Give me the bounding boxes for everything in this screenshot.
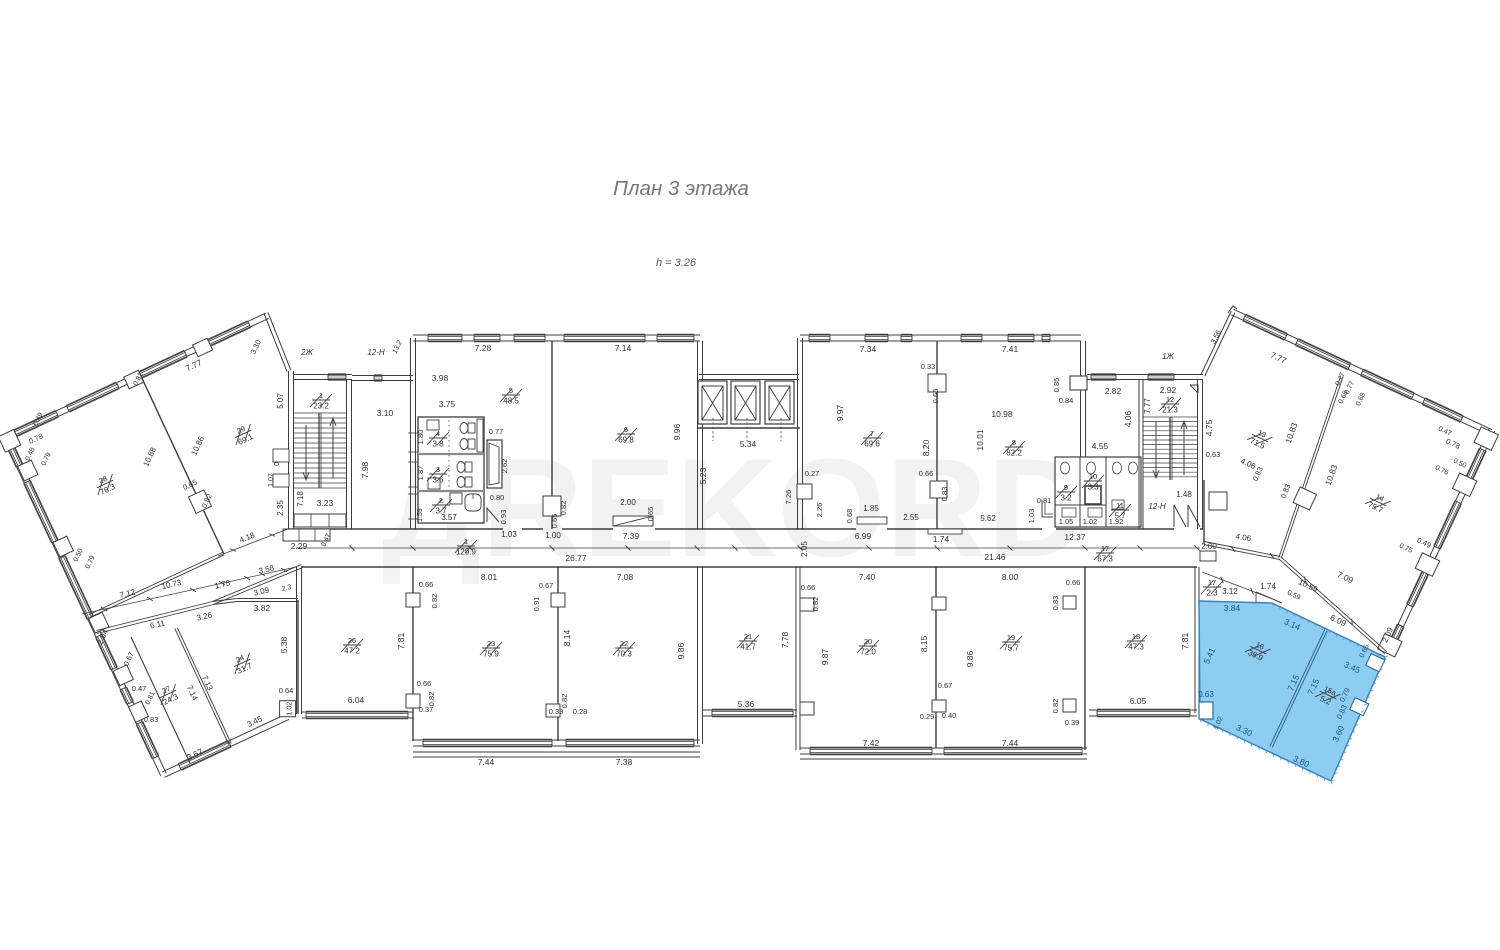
svg-text:6.99: 6.99 xyxy=(855,531,872,541)
svg-text:12-Н: 12-Н xyxy=(367,348,385,357)
svg-text:0.91: 0.91 xyxy=(532,597,541,612)
svg-text:0.66: 0.66 xyxy=(801,583,816,592)
svg-text:1.48: 1.48 xyxy=(1176,490,1192,499)
svg-text:2.05: 2.05 xyxy=(800,541,809,557)
svg-text:3.23: 3.23 xyxy=(317,498,334,508)
svg-text:0.33: 0.33 xyxy=(921,362,936,371)
svg-text:2.29: 2.29 xyxy=(291,541,308,551)
svg-text:7.42: 7.42 xyxy=(863,738,880,748)
svg-text:0.63: 0.63 xyxy=(1206,450,1221,459)
svg-text:0.84: 0.84 xyxy=(1059,396,1074,405)
svg-text:1.92: 1.92 xyxy=(1109,517,1124,526)
svg-text:6.04: 6.04 xyxy=(348,695,365,705)
svg-text:2.00: 2.00 xyxy=(620,498,636,507)
svg-text:7.14: 7.14 xyxy=(615,343,632,353)
svg-text:7.81: 7.81 xyxy=(396,632,406,649)
svg-text:9.97: 9.97 xyxy=(835,404,845,421)
svg-text:1Ж: 1Ж xyxy=(1162,352,1174,361)
svg-text:4.55: 4.55 xyxy=(1092,441,1109,451)
svg-text:26.77: 26.77 xyxy=(565,553,587,563)
svg-text:0.82: 0.82 xyxy=(559,501,568,516)
svg-text:9.86: 9.86 xyxy=(965,650,975,667)
svg-text:0.67: 0.67 xyxy=(938,681,953,690)
svg-text:1.03: 1.03 xyxy=(501,530,517,539)
svg-text:0.65: 0.65 xyxy=(550,514,559,529)
svg-text:8.01: 8.01 xyxy=(481,572,498,582)
svg-text:0.28: 0.28 xyxy=(573,707,588,716)
svg-text:1.02: 1.02 xyxy=(287,702,294,716)
svg-text:8.20: 8.20 xyxy=(921,439,931,456)
svg-text:0.77: 0.77 xyxy=(489,427,504,436)
svg-text:7.39: 7.39 xyxy=(623,531,640,541)
svg-text:0.66: 0.66 xyxy=(919,469,934,478)
svg-text:2Ж: 2Ж xyxy=(300,348,313,357)
svg-text:7.44: 7.44 xyxy=(1002,738,1019,748)
svg-text:2.35: 2.35 xyxy=(276,500,285,516)
svg-text:7.77: 7.77 xyxy=(1143,398,1152,414)
svg-text:8.00: 8.00 xyxy=(1002,572,1019,582)
svg-text:7.98: 7.98 xyxy=(360,461,370,478)
svg-text:0.39: 0.39 xyxy=(1065,718,1080,727)
svg-text:0.65: 0.65 xyxy=(646,507,655,522)
svg-text:1.87: 1.87 xyxy=(416,466,425,481)
svg-text:0.64: 0.64 xyxy=(279,686,294,695)
svg-text:1.74: 1.74 xyxy=(1260,582,1276,591)
svg-text:7.78: 7.78 xyxy=(780,631,790,648)
svg-text:1.03: 1.03 xyxy=(1027,509,1036,524)
svg-text:5.38: 5.38 xyxy=(279,636,289,653)
svg-text:0.85: 0.85 xyxy=(1052,378,1061,393)
svg-text:3.12: 3.12 xyxy=(1222,587,1238,596)
svg-text:12.37: 12.37 xyxy=(1064,532,1086,542)
svg-text:0.29: 0.29 xyxy=(920,712,935,721)
svg-text:1.00: 1.00 xyxy=(545,531,561,540)
svg-text:0.80: 0.80 xyxy=(490,493,505,502)
svg-text:0.82: 0.82 xyxy=(811,597,820,612)
svg-text:2.55: 2.55 xyxy=(903,513,919,522)
svg-text:1.74: 1.74 xyxy=(933,534,950,544)
svg-text:0.82: 0.82 xyxy=(1051,699,1060,714)
svg-text:5.07: 5.07 xyxy=(276,393,285,409)
svg-text:0.67: 0.67 xyxy=(539,581,554,590)
svg-text:3.84: 3.84 xyxy=(1224,603,1241,613)
svg-text:0.82: 0.82 xyxy=(430,594,439,609)
svg-text:0.81: 0.81 xyxy=(1037,496,1052,505)
svg-text:5.62: 5.62 xyxy=(980,514,996,523)
svg-text:7.08: 7.08 xyxy=(617,572,634,582)
svg-text:0.65: 0.65 xyxy=(931,389,940,404)
svg-text:0.37: 0.37 xyxy=(419,705,434,714)
svg-text:0.40: 0.40 xyxy=(942,711,957,720)
svg-text:3.57: 3.57 xyxy=(441,513,457,522)
svg-text:8.14: 8.14 xyxy=(562,629,572,646)
svg-text:2.62: 2.62 xyxy=(500,459,509,474)
svg-text:3.10: 3.10 xyxy=(377,408,394,418)
svg-text:План 3 этажа: План 3 этажа xyxy=(613,177,749,200)
svg-text:3.98: 3.98 xyxy=(432,373,449,383)
svg-text:0.66: 0.66 xyxy=(417,679,432,688)
svg-text:21.46: 21.46 xyxy=(984,552,1006,562)
svg-text:7.28: 7.28 xyxy=(475,343,492,353)
svg-text:0.66: 0.66 xyxy=(419,580,434,589)
svg-text:8.15: 8.15 xyxy=(919,635,929,652)
svg-text:7.41: 7.41 xyxy=(1002,344,1019,354)
svg-text:7.40: 7.40 xyxy=(859,572,876,582)
svg-text:7.81: 7.81 xyxy=(1180,632,1190,649)
svg-text:7.18: 7.18 xyxy=(296,491,305,507)
svg-text:0.63: 0.63 xyxy=(1198,690,1214,699)
svg-text:1.85: 1.85 xyxy=(863,504,879,513)
svg-text:2.82: 2.82 xyxy=(1105,386,1122,396)
svg-text:3.82: 3.82 xyxy=(254,603,271,613)
svg-text:1.02: 1.02 xyxy=(1083,517,1098,526)
svg-text:9.87: 9.87 xyxy=(820,648,830,665)
svg-text:5.36: 5.36 xyxy=(738,699,755,709)
svg-text:7.34: 7.34 xyxy=(860,344,877,354)
svg-text:0.83: 0.83 xyxy=(1051,596,1060,611)
svg-text:1.05: 1.05 xyxy=(1059,517,1074,526)
svg-text:1.59: 1.59 xyxy=(417,508,424,522)
svg-text:1.80: 1.80 xyxy=(416,430,425,445)
svg-text:0.93: 0.93 xyxy=(499,510,508,525)
svg-text:3.75: 3.75 xyxy=(439,399,456,409)
svg-text:5.34: 5.34 xyxy=(740,439,757,449)
svg-text:0.66: 0.66 xyxy=(1066,578,1081,587)
svg-text:9.96: 9.96 xyxy=(672,423,682,440)
svg-text:4.75: 4.75 xyxy=(1204,419,1214,436)
svg-text:2.92: 2.92 xyxy=(1160,385,1177,395)
svg-text:0.27: 0.27 xyxy=(805,469,820,478)
svg-text:0.39: 0.39 xyxy=(549,707,564,716)
svg-text:7.38: 7.38 xyxy=(616,757,633,767)
svg-text:10.98: 10.98 xyxy=(991,409,1013,419)
svg-text:5.23: 5.23 xyxy=(698,467,708,484)
svg-text:4.06: 4.06 xyxy=(1123,410,1133,427)
svg-text:h = 3.26: h = 3.26 xyxy=(656,257,697,269)
svg-text:0.47: 0.47 xyxy=(132,684,147,693)
svg-text:0.68: 0.68 xyxy=(845,509,854,524)
svg-text:6.05: 6.05 xyxy=(1130,696,1147,706)
svg-text:7.44: 7.44 xyxy=(478,757,495,767)
svg-text:0.83: 0.83 xyxy=(940,487,949,502)
svg-text:9.86: 9.86 xyxy=(676,642,686,659)
svg-text:12-Н: 12-Н xyxy=(1148,502,1166,511)
svg-text:2.26: 2.26 xyxy=(815,503,824,518)
svg-text:7.26: 7.26 xyxy=(784,490,793,505)
svg-text:10.01: 10.01 xyxy=(975,429,985,451)
